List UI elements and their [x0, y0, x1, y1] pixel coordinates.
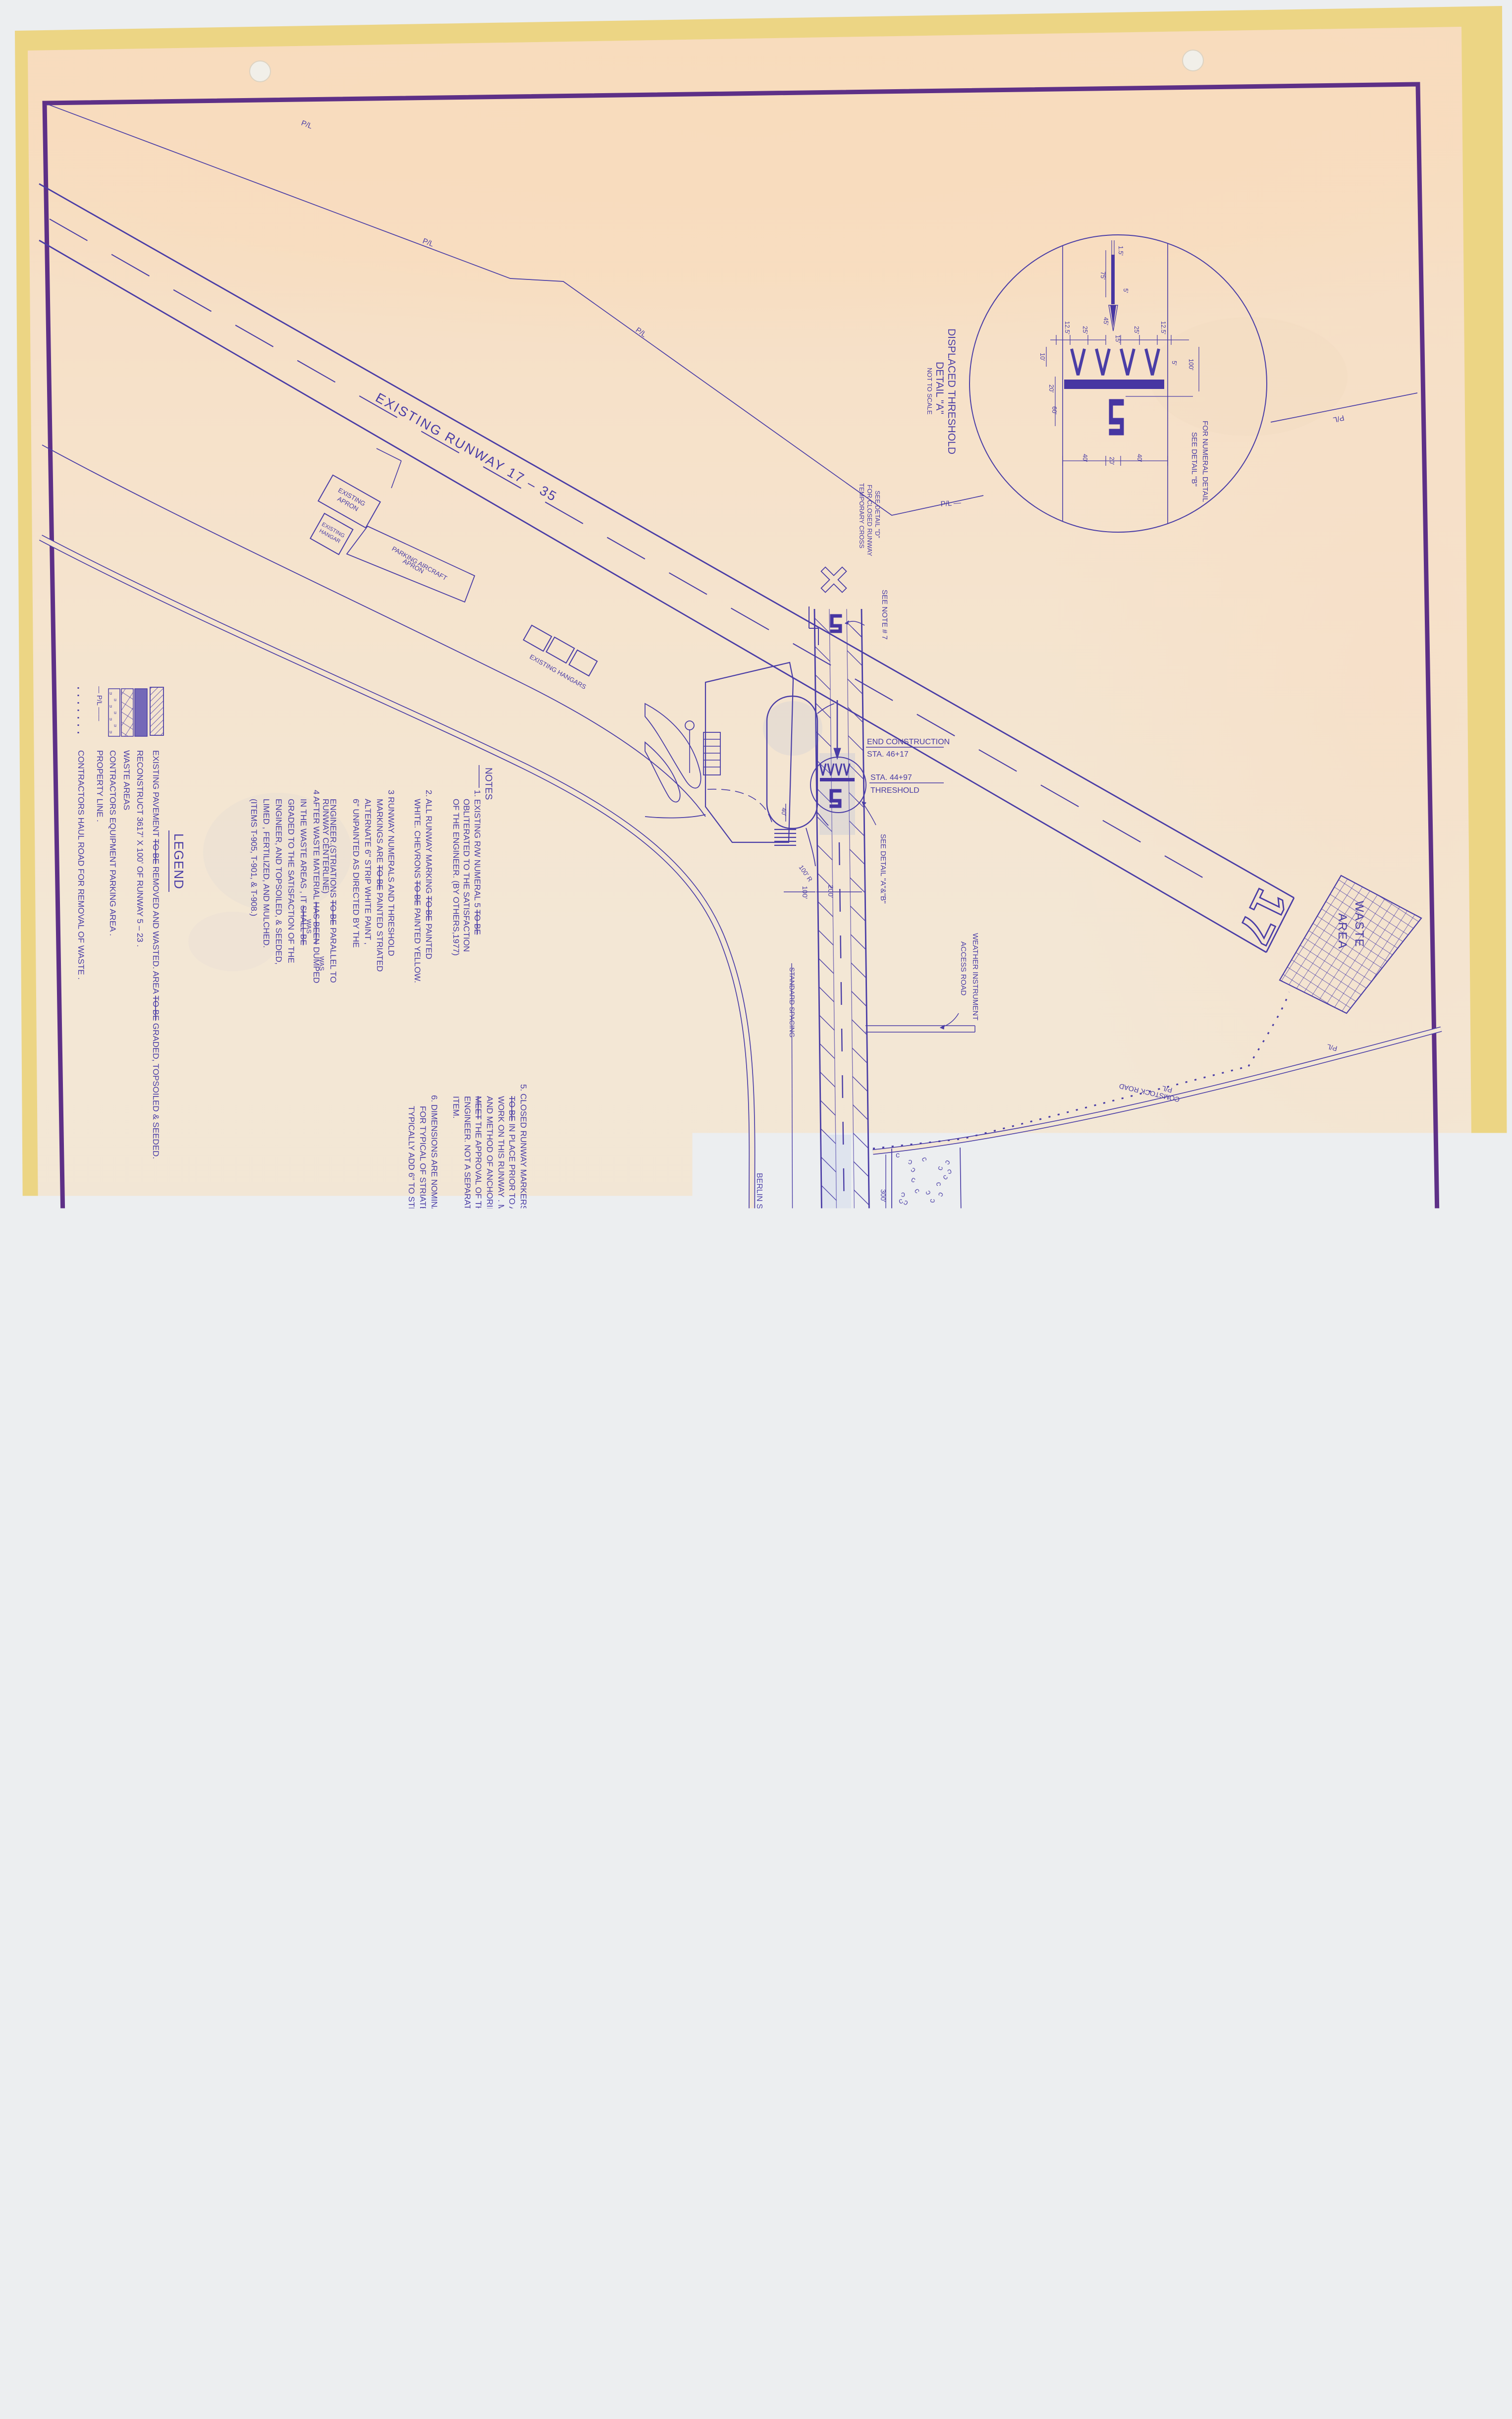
svg-text:NOTES: NOTES	[483, 768, 493, 800]
svg-text:3': 3'	[423, 1715, 430, 1720]
svg-text:CLOSED RUNWAY: CLOSED RUNWAY	[861, 1984, 868, 2045]
svg-text:STRIATED PAINTING: STRIATED PAINTING	[545, 2138, 556, 2235]
svg-text:10': 10'	[469, 1733, 477, 1742]
svg-text:AREA: AREA	[1336, 913, 1349, 949]
svg-text:WASTE AREAS: WASTE AREAS	[122, 750, 131, 810]
svg-text:YELLOW PLYWOOD OR SNOW FEN: YELLOW PLYWOOD OR SNOW FENCE.	[1181, 2146, 1188, 2275]
svg-text:u: u	[114, 710, 116, 715]
svg-text:5. CLOSED RUNWAY MARKERS: 5. CLOSED RUNWAY MARKERS ( Xʼs )	[519, 1084, 528, 1235]
svg-text:SEE DETAIL "A"&"B": SEE DETAIL "A"&"B"	[879, 834, 887, 904]
svg-text:c: c	[934, 1182, 943, 1186]
svg-text:NON STANDARD SPACING: NON STANDARD SPACING	[777, 1366, 785, 1453]
svg-text:22': 22'	[354, 1476, 362, 1484]
svg-text:10': 10'	[470, 1951, 478, 1960]
svg-text:TAXIWAY HOLDING LINE: TAXIWAY HOLDING LINE	[1080, 1639, 1091, 1760]
svg-text:TAXIWAY ℄ STRIPE & HOLDING: TAXIWAY ℄ STRIPE & HOLDING	[1266, 1799, 1274, 1906]
svg-text:FOR CLOSED RUNWAY: FOR CLOSED RUNWAY	[866, 485, 873, 556]
svg-text:TO BE IN PLACE PRIOR TO: TO BE IN PLACE PRIOR TO ANY	[507, 1096, 517, 1224]
svg-text:2ʼ-6": 2ʼ-6"	[578, 2126, 586, 2139]
svg-text:5': 5'	[436, 1393, 444, 1398]
svg-text:6. DIMENSIONS ARE NOMINAL.: 6. DIMENSIONS ARE NOMINAL. SEE DETAIL	[430, 1095, 439, 1270]
svg-text:100': 100'	[801, 886, 809, 899]
svg-text:THRESHOLD: THRESHOLD	[222, 1439, 230, 1479]
svg-text:20': 20'	[1048, 385, 1055, 392]
svg-text:120': 120'	[805, 1791, 812, 1804]
svg-text:25': 25'	[1081, 326, 1088, 334]
svg-text:THRESHOLD: THRESHOLD	[897, 1947, 946, 1955]
svg-text:RECONSTRUCT 3617ʼ X 100ʼ O: RECONSTRUCT 3617ʼ X 100ʼ OF RUNWAY 5 – 2…	[135, 750, 145, 947]
svg-text:AS BUILT PLANS: AS BUILT PLANS	[420, 2126, 434, 2224]
svg-text:40': 40'	[1081, 454, 1088, 462]
svg-text:SEE DETAIL "D": SEE DETAIL "D"	[852, 1984, 860, 2035]
svg-text:5': 5'	[366, 1418, 374, 1423]
svg-text:5': 5'	[500, 1924, 507, 1928]
svg-text:YELLOW.: YELLOW.	[1244, 1841, 1252, 1873]
svg-text:5': 5'	[1122, 288, 1129, 293]
svg-text:PROPERTY LINE .: PROPERTY LINE .	[95, 750, 105, 822]
svg-text:OBLITERATED TO THE SATISFAC: OBLITERATED TO THE SATISFACTION	[462, 799, 471, 952]
svg-text:SEE DETAIL "B": SEE DETAIL "B"	[1190, 432, 1198, 487]
svg-text:TYPICAL CENTERLINE: TYPICAL CENTERLINE	[637, 2224, 644, 2290]
svg-text:7.5': 7.5'	[500, 1829, 507, 1839]
svg-text:4 AFTER WASTE MATERIAL: 4 AFTER WASTE MATERIAL HAS BEEN DUMPED	[312, 790, 321, 983]
svg-text:accomplished as indicated here: accomplished as indicated herein.	[382, 2105, 390, 2213]
svg-text:THRESHOLD: THRESHOLD	[870, 786, 919, 795]
svg-text:(ITEMS T-905, T-901, & T-90: (ITEMS T-905, T-901, & T-908.)	[249, 799, 259, 916]
svg-text:5': 5'	[500, 1808, 507, 1812]
svg-text:10': 10'	[301, 1476, 308, 1484]
svg-text:By: By	[360, 2107, 368, 2116]
svg-text:WORK ON THIS RUNWAY . MATE: WORK ON THIS RUNWAY . MATERIAL	[496, 1096, 506, 1246]
svg-text:SEE DETAIL "D": SEE DETAIL "D"	[874, 491, 881, 538]
svg-text:u: u	[109, 716, 112, 721]
svg-text:ALL SPACES AND STRIPES: ALL SPACES AND STRIPES	[611, 2045, 618, 2125]
svg-text:MARKINGS ARE TO BE PAINTE: MARKINGS ARE TO BE PAINTED STRIATED	[375, 799, 384, 972]
svg-text:75': 75'	[1099, 272, 1106, 279]
svg-text:40': 40'	[1136, 454, 1143, 462]
svg-text:10': 10'	[500, 1783, 507, 1791]
svg-text:DETAIL "A": DETAIL "A"	[934, 362, 945, 414]
svg-text:20': 20'	[501, 1417, 508, 1426]
svg-text:GRADED TO THE SATISFACTION: GRADED TO THE SATISFACTION OF THE	[286, 799, 296, 963]
svg-text:79': 79'	[800, 1415, 807, 1424]
svg-text:60': 60'	[1051, 406, 1058, 414]
svg-text:3 RUNWAY NUMERALS AND: 3 RUNWAY NUMERALS AND THRESHOLD	[386, 790, 396, 956]
svg-text:7': 7'	[379, 1953, 386, 1958]
svg-text:25': 25'	[1133, 326, 1140, 334]
svg-text:BERLIN STATE HWY.: BERLIN STATE HWY.	[755, 1173, 763, 1250]
svg-text:SCALE 1" = 20ʼ: SCALE 1" = 20ʼ	[183, 1426, 190, 1471]
svg-text:3': 3'	[1208, 1685, 1215, 1689]
svg-text:TEMPORARY CROSS FOR: TEMPORARY CROSS FOR	[869, 1981, 877, 2068]
svg-text:FOR TYPICAL OF STRIATED MA: FOR TYPICAL OF STRIATED MARKING,	[418, 1106, 428, 1262]
svg-text:1.5': 1.5'	[1117, 246, 1124, 256]
svg-text:SCALE 1" = 200ʼ: SCALE 1" = 200ʼ	[696, 1220, 709, 1305]
svg-text:5': 5'	[500, 1758, 507, 1762]
svg-text:LEGEND: LEGEND	[171, 833, 186, 889]
svg-text:24': 24'	[380, 1733, 387, 1742]
svg-text:u: u	[114, 697, 116, 702]
svg-text:10': 10'	[303, 1951, 310, 1960]
svg-text:ALTERNATE 6" STRIP WHIT: ALTERNATE 6" STRIP WHITE PAINT ,	[363, 799, 373, 944]
svg-text:℄: ℄	[546, 1839, 559, 1847]
svg-text:1. EXISTING R/W NUMERAL: 1. EXISTING R/W NUMERAL 5 TO BE	[473, 790, 482, 935]
svg-text:3': 3'	[1207, 1665, 1214, 1669]
svg-text:2. ALL RUNWAY MARKING TO: 2. ALL RUNWAY MARKING TO BE PAINTED	[424, 790, 433, 959]
svg-text:6': 6'	[439, 1734, 447, 1739]
svg-text:20': 20'	[250, 1839, 258, 1848]
svg-text:ADAP PROJECT NO. 6-50-0001: ADAP PROJECT NO. 6-50-0001-05	[271, 2106, 281, 2270]
svg-text:LIMED , FERTILIZED, AND MULC: LIMED , FERTILIZED, AND MULCHED.	[262, 799, 271, 948]
svg-text:SCALE 1" = 20ʼ: SCALE 1" = 20ʼ	[126, 1836, 134, 1881]
svg-text:DETAIL "C": DETAIL "C"	[136, 1833, 148, 1886]
svg-text:DEPARTMENT OF AERONAUTICS: DEPARTMENT OF AERONAUTICS	[121, 2128, 132, 2315]
svg-text:SEE NOTE # 7: SEE NOTE # 7	[880, 590, 889, 640]
svg-text:7': 7'	[424, 1953, 431, 1958]
svg-text:THRESHOLD: THRESHOLD	[219, 1823, 227, 1863]
svg-text:12.5': 12.5'	[1160, 321, 1167, 334]
svg-text:CONTRACTORS HAUL ROAD: CONTRACTORS HAUL ROAD FOR REMOVAL OF WAS…	[76, 750, 86, 980]
svg-text:GENERAL PLAN &: GENERAL PLAN &	[183, 2163, 197, 2279]
svg-text:c: c	[896, 1151, 900, 1159]
svg-text:80': 80'	[802, 1566, 810, 1575]
svg-text:9': 9'	[362, 1897, 370, 1902]
svg-text:40': 40'	[780, 808, 788, 816]
svg-text:TEMPORARY CROSS: TEMPORARY CROSS	[858, 483, 865, 549]
svg-text:N O T E: N O T E	[619, 2066, 626, 2089]
svg-text:7 SPACES AT: 7 SPACES AT	[1197, 1793, 1205, 1834]
svg-text:45': 45'	[1102, 317, 1109, 325]
svg-text:I hereby certify that all the: I hereby certify that all the constructi…	[404, 2105, 412, 2228]
svg-text:LINE TO BE PAINTED SOLID: LINE TO BE PAINTED SOLID	[1255, 1801, 1263, 1896]
svg-text:120': 120'	[802, 1598, 810, 1610]
svg-text:6" UNPAINTED AS DIRECTED: 6" UNPAINTED AS DIRECTED BY THE	[351, 799, 361, 948]
svg-text:23: 23	[844, 1912, 873, 1940]
svg-text:6": 6"	[1236, 1727, 1243, 1733]
svg-text:℄: ℄	[590, 1419, 602, 1427]
svg-text:10': 10'	[468, 1476, 476, 1484]
svg-text:80': 80'	[805, 1759, 812, 1768]
svg-text:155': 155'	[801, 1528, 809, 1540]
svg-text:EXISTING PAVEMENT TO BE: EXISTING PAVEMENT TO BE REMOVED AND WAST…	[151, 750, 161, 1159]
svg-text:7': 7'	[329, 1734, 337, 1739]
svg-text:AND METHOD OF ANCHORING TO: AND METHOD OF ANCHORING TO MET	[485, 1096, 494, 1254]
svg-text:ENGINEER. NOT A SEPARATE: ENGINEER. NOT A SEPARATE PAY	[463, 1096, 472, 1233]
svg-text:10': 10'	[408, 1477, 416, 1485]
svg-text:USED: USED	[1191, 2146, 1199, 2165]
svg-text:ENGINEER, AND TOPSOILED, &: ENGINEER, AND TOPSOILED, & SEEDED,	[274, 799, 283, 965]
svg-text:u: u	[109, 704, 112, 709]
svg-text:20': 20'	[260, 1898, 268, 1906]
svg-text:MARKING DIAGRAM: MARKING DIAGRAM	[162, 2161, 176, 2291]
svg-text:RECONSTRUCT 100' X 3617' R: RECONSTRUCT 100' X 3617' RUNWAY	[847, 1366, 858, 1560]
svg-text:STA. 10+00: STA. 10+00	[897, 1933, 938, 1941]
svg-text:5': 5'	[390, 1923, 397, 1927]
svg-text:20': 20'	[260, 1781, 268, 1789]
svg-text:8': 8'	[438, 1478, 446, 1483]
svg-text:END CONSTRUCTION: END CONSTRUCTION	[867, 738, 950, 746]
svg-text:DETAIL ʼEʼ: DETAIL ʼEʼ	[1111, 1681, 1123, 1730]
svg-text:10': 10'	[1039, 353, 1046, 361]
svg-text:Project Engineer: Project Engineer	[360, 2224, 368, 2277]
svg-text:120': 120'	[804, 1727, 811, 1739]
svg-text:WHITE. CHEVRONS TO BE PAINTE: WHITE. CHEVRONS TO BE PAINTED YELLOW.	[413, 799, 422, 983]
svg-text:20': 20'	[1108, 457, 1115, 465]
svg-text:u: u	[114, 723, 116, 728]
svg-text:20': 20'	[249, 1416, 257, 1425]
svg-text:DETAIL "D": DETAIL "D"	[1048, 2041, 1059, 2094]
svg-text:300': 300'	[879, 1189, 887, 1202]
svg-text:79': 79'	[801, 1490, 808, 1499]
svg-text:WASTE: WASTE	[1352, 901, 1366, 947]
svg-text:EDWARD F. KNAPP STATE AIRP: EDWARD F. KNAPP STATE AIRPORT	[240, 2107, 253, 2345]
svg-text:— P/L ——: — P/L ——	[96, 686, 104, 721]
svg-text:STA. 44+97: STA. 44+97	[870, 773, 912, 782]
svg-text:VAIL O. LEACH – AIRPORT: VAIL O. LEACH – AIRPORT ENGINEER	[98, 2110, 108, 2318]
svg-text:155': 155'	[800, 1453, 808, 1465]
svg-text:BERLIN , VERMONT: BERLIN , VERMONT	[220, 2153, 233, 2284]
svg-text:N: N	[1411, 1631, 1435, 1646]
svg-text:u: u	[109, 691, 112, 696]
svg-text:ACCESS ROAD: ACCESS ROAD	[959, 941, 968, 995]
svg-text:P/L: P/L	[958, 1289, 966, 1299]
svg-text:required by this set of drawin: required by this set of drawings has bee…	[393, 2105, 401, 2236]
svg-text:WAS: WAS	[305, 919, 313, 934]
svg-text:80': 80'	[804, 1695, 811, 1704]
svg-text:MEET THE APPROVAL OF TH: MEET THE APPROVAL OF THE	[474, 1096, 483, 1218]
svg-text:FOR NUMERAL DETAIL: FOR NUMERAL DETAIL	[1201, 421, 1209, 502]
svg-text:DISPLACED THRESHOLD: DISPLACED THRESHOLD	[946, 329, 957, 454]
svg-text:15': 15'	[500, 1892, 507, 1900]
svg-text:200': 200'	[919, 1251, 932, 1259]
svg-text:P/L: P/L	[965, 1625, 972, 1636]
svg-text:STRIPE: STRIPE	[629, 2238, 636, 2260]
svg-text:CONTRACTORS EQUIPMENT PA: CONTRACTORS EQUIPMENT PARKING AREA .	[108, 750, 117, 936]
svg-text:SHEET 3 OF 22: SHEET 3 OF 22	[72, 1859, 85, 1954]
svg-text:10': 10'	[302, 1733, 309, 1742]
svg-text:5': 5'	[421, 1895, 428, 1900]
svg-text:BEGIN CONSTRUCTION: BEGIN CONSTRUCTION	[964, 1935, 1054, 1944]
svg-text:155': 155'	[798, 1302, 806, 1315]
svg-text:7.5': 7.5'	[500, 1864, 507, 1874]
svg-text:100': 100'	[1188, 359, 1194, 370]
svg-text:R/W: R/W	[573, 1416, 584, 1435]
svg-text:TO BE EQUAL WIDTH ( 6"): TO BE EQUAL WIDTH ( 6")	[603, 2045, 610, 2122]
svg-text:P/L: P/L	[962, 1473, 970, 1483]
svg-text:7': 7'	[404, 1953, 411, 1958]
svg-text:3': 3'	[1210, 1728, 1217, 1733]
svg-text:TYPICAL: TYPICAL	[534, 2165, 544, 2206]
svg-text:80': 80'	[803, 1630, 810, 1639]
svg-text:OF THE ENGINEER. (BY OTHERS: OF THE ENGINEER. (BY OTHERS,1977)	[451, 799, 461, 956]
svg-text:RUNWAY CENTERLINE): RUNWAY CENTERLINE)	[321, 799, 330, 893]
svg-text:c: c	[901, 1191, 905, 1199]
svg-text:200': 200'	[827, 885, 835, 898]
svg-text:120': 120'	[803, 1662, 810, 1675]
svg-text:P/L —: P/L —	[940, 498, 961, 508]
svg-text:15': 15'	[1114, 335, 1121, 343]
svg-text:40': 40'	[806, 1823, 813, 1832]
svg-text:12.5': 12.5'	[1064, 321, 1071, 334]
svg-text:60': 60'	[389, 1838, 397, 1847]
svg-text:5': 5'	[1171, 361, 1178, 365]
svg-text:CROSS FOR CLOSED RUNWAY: CROSS FOR CLOSED RUNWAY	[1066, 1979, 1079, 2161]
svg-text:79': 79'	[799, 1340, 806, 1349]
svg-text:6": 6"	[1163, 1728, 1170, 1734]
svg-text:WAS: WAS	[318, 956, 325, 971]
svg-text:JOB "B": JOB "B"	[281, 2127, 292, 2162]
svg-text:R/W: R/W	[530, 1836, 541, 1856]
svg-text:WEATHER INSTRUMENT: WEATHER INSTRUMENT	[971, 933, 979, 1020]
svg-text:DETAIL "B": DETAIL "B"	[193, 1423, 204, 1476]
svg-text:STANDARD SPACING: STANDARD SPACING	[784, 1680, 792, 1750]
svg-text:NOT TO SCALE: NOT TO SCALE	[926, 368, 933, 415]
svg-text:155': 155'	[799, 1377, 807, 1390]
svg-text:u: u	[109, 729, 112, 734]
svg-text:STA. 46+17: STA. 46+17	[867, 750, 909, 759]
svg-text:6" = 3ʼ 6": 6" = 3ʼ 6"	[1187, 1795, 1194, 1821]
svg-text:TYPICALLY ADD 6" TO STRIPE: TYPICALLY ADD 6" TO STRIPE WIDTH.	[407, 1106, 416, 1259]
svg-text:ITEM.: ITEM.	[451, 1096, 461, 1118]
svg-text:19': 19'	[345, 1951, 353, 1960]
svg-text:Date: Date	[345, 2107, 353, 2123]
svg-text:STANDARD SPACING: STANDARD SPACING	[788, 967, 796, 1038]
svg-text:SEE DETAIL "C": SEE DETAIL "C"	[817, 1958, 825, 2009]
